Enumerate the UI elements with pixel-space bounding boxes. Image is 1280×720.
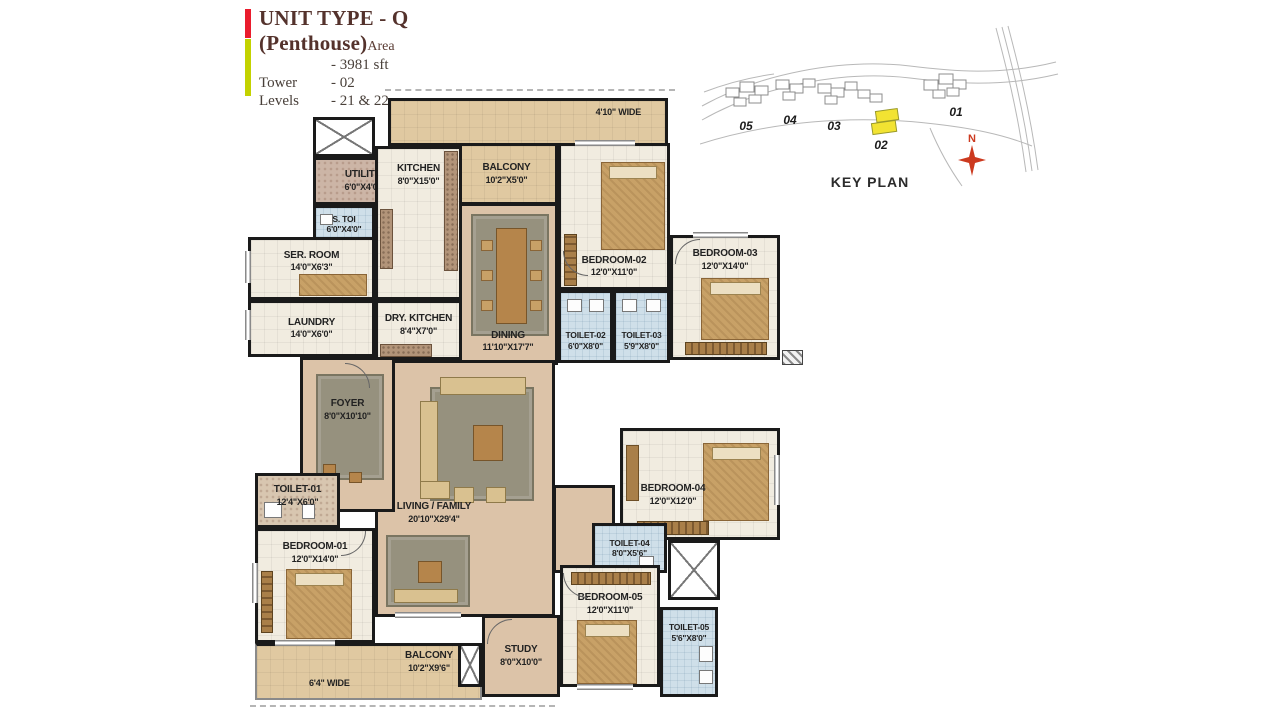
tower-label-02: 02: [874, 138, 888, 152]
bed: [703, 443, 769, 521]
tower-label-01: 01: [949, 105, 963, 119]
room-name: STUDY: [505, 644, 538, 657]
room-dim: 14'0"X6'3": [291, 262, 333, 273]
bed: [577, 620, 637, 684]
room-dim: 8'0"X15'0": [398, 176, 440, 187]
bed-pillow: [609, 166, 657, 179]
key-plan-highlighted-tower: [871, 109, 898, 135]
sofa: [394, 589, 458, 603]
room-toilet-01: TOILET-01 12'4"X6'0": [255, 473, 340, 528]
kitchen-counter: [380, 344, 432, 357]
page: { "header": { "title": "UNIT TYPE - Q (P…: [0, 0, 1280, 720]
room-dim: 12'0"X14'0": [702, 261, 749, 272]
chair: [530, 270, 542, 281]
room-name: S. TOI: [332, 214, 355, 225]
sofa: [420, 401, 438, 483]
room-dim: 12'0"X11'0": [587, 605, 633, 616]
window: [252, 563, 258, 603]
room-name: BEDROOM-02: [582, 255, 647, 268]
north-compass-icon: [958, 145, 986, 176]
room-name: FOYER: [324, 398, 371, 411]
toilet-fixture: [622, 299, 637, 312]
ledge-hatch: [782, 350, 803, 365]
armchair: [486, 487, 506, 503]
spec-value-area: - 3981 sft: [331, 56, 389, 74]
room-name: TOILET-05: [669, 622, 709, 633]
room-laundry: LAUNDRY 14'0"X6'0": [248, 300, 375, 357]
bed-pillow: [295, 573, 344, 586]
balcony-shaft: [458, 643, 482, 687]
room-dim: 20'10"X29'4": [382, 514, 486, 525]
window: [575, 140, 635, 146]
coffee-table: [473, 425, 503, 461]
chair: [481, 300, 493, 311]
window: [245, 310, 251, 340]
window: [275, 640, 335, 646]
boundary-dashed-line-bottom: [250, 705, 555, 707]
table: [418, 561, 442, 583]
spec-label: Tower: [259, 74, 331, 92]
kitchen-counter: [380, 209, 393, 269]
balcony-width-note: 6'4" WIDE: [309, 678, 350, 689]
room-toilet-03: TOILET-03 5'9"X8'0": [613, 290, 670, 363]
chair: [481, 270, 493, 281]
room-dim: 8'0"X10'0": [500, 657, 542, 668]
toilet-fixture: [567, 299, 582, 312]
room-dim: 6'0"X8'0": [568, 341, 603, 351]
room-balcony-walkway: 4'10" WIDE: [388, 98, 668, 146]
room-dim: 8'0"X10'10": [324, 411, 371, 422]
bed: [601, 162, 665, 250]
room-balcony-bottom: BALCONY 10'2"X9'6" 6'4" WIDE: [255, 643, 482, 700]
room-name: BEDROOM-04: [625, 483, 721, 496]
room-name: TOILET-04: [609, 538, 649, 549]
room-name: LAUNDRY: [288, 317, 335, 330]
sofa: [420, 481, 450, 499]
room-dim: 8'4"X7'0": [400, 326, 437, 337]
balcony-sliding-door: [395, 612, 461, 618]
bed-pillow: [585, 624, 630, 637]
wardrobe: [685, 342, 767, 355]
tower-label-03: 03: [827, 119, 841, 133]
toilet-fixture: [589, 299, 604, 312]
room-toilet-02: TOILET-02 6'0"X8'0": [558, 290, 613, 363]
room-dim: 5'9"X8'0": [624, 341, 659, 351]
kitchen-counter: [444, 151, 458, 271]
page-title: UNIT TYPE - Q (Penthouse)Area: [259, 6, 545, 56]
room-name: KITCHEN: [397, 163, 440, 176]
room-living-family: LIVING / FAMILY 20'10"X29'4": [375, 360, 555, 617]
spec-value-tower: - 02: [331, 74, 355, 92]
room-name: BEDROOM-01: [283, 541, 348, 554]
room-name: SER. ROOM: [284, 250, 339, 263]
dining-rug: [471, 214, 549, 336]
room-servant-room: SER. ROOM 14'0"X6'3": [248, 237, 375, 300]
foyer-seat: [349, 472, 362, 483]
room-toilet-05: TOILET-05 5'6"X8'0": [660, 607, 718, 697]
room-label: FOYER 8'0"X10'10": [324, 398, 371, 421]
room-name: TOILET-01: [274, 484, 321, 497]
bed-pillow: [712, 447, 761, 460]
lift-shaft: [313, 117, 375, 157]
room-dim: 12'0"X12'0": [625, 496, 721, 507]
sofa: [440, 377, 526, 395]
room-dim: 5'6"X8'0": [672, 633, 707, 643]
window: [577, 684, 633, 690]
room-label: BEDROOM-04 12'0"X12'0": [625, 483, 721, 506]
window: [774, 455, 780, 505]
room-dim: 12'0"X11'0": [591, 267, 637, 278]
wardrobe: [261, 571, 273, 633]
key-plan-title: KEY PLAN: [831, 174, 910, 190]
room-balcony-top: BALCONY 10'2"X5'0": [455, 143, 558, 205]
room-name: LIVING / FAMILY: [382, 501, 486, 514]
room-dim: 6'0"X4'0": [327, 224, 362, 234]
room-dining: DINING 11'10"X17'7": [458, 203, 558, 365]
toilet-fixture: [699, 646, 713, 662]
north-label: N: [968, 133, 976, 145]
boundary-dashed-line-top: [385, 89, 675, 91]
room-dim: 12'4"X6'0": [277, 497, 319, 508]
bed: [299, 274, 367, 296]
dining-table: [496, 228, 527, 324]
spec-area: - 3981 sft: [259, 56, 545, 74]
room-label: LIVING / FAMILY 20'10"X29'4": [382, 501, 486, 524]
chair: [530, 240, 542, 251]
window: [245, 251, 251, 283]
basin-fixture: [699, 670, 713, 684]
room-dim: 10'2"X5'0": [486, 175, 528, 186]
living-rug-2: [386, 535, 470, 607]
room-dim: 8'0"X5'6": [612, 548, 647, 558]
room-name: DRY. KITCHEN: [385, 313, 452, 326]
room-kitchen: KITCHEN 8'0"X15'0": [375, 146, 462, 300]
room-dim: 14'0"X6'0": [291, 329, 333, 340]
red-accent-bar: [245, 9, 251, 38]
room-dry-kitchen: DRY. KITCHEN 8'4"X7'0": [375, 300, 462, 360]
chair: [481, 240, 493, 251]
service-shaft: [668, 540, 720, 600]
area-word: Area: [367, 39, 394, 54]
room-name: BEDROOM-03: [693, 248, 758, 261]
room-dim: 4'10" WIDE: [596, 107, 641, 118]
chair: [530, 300, 542, 311]
floor-plan: 4'10" WIDE BALCONY 10'2"X5'0" DINING 11'…: [245, 95, 803, 713]
spec-label: [259, 56, 331, 74]
window: [693, 232, 748, 238]
toilet-fixture: [646, 299, 661, 312]
bed: [286, 569, 352, 639]
room-dim: 11'10"X17'7": [483, 342, 534, 353]
room-name: BALCONY: [482, 162, 530, 175]
room-name: TOILET-03: [621, 330, 661, 341]
bed-pillow: [710, 282, 761, 295]
room-name: DINING: [491, 330, 525, 343]
room-dim: 12'0"X14'0": [292, 554, 339, 565]
green-accent-bar: [245, 39, 251, 96]
room-name: TOILET-02: [565, 330, 605, 341]
bed: [701, 278, 769, 340]
